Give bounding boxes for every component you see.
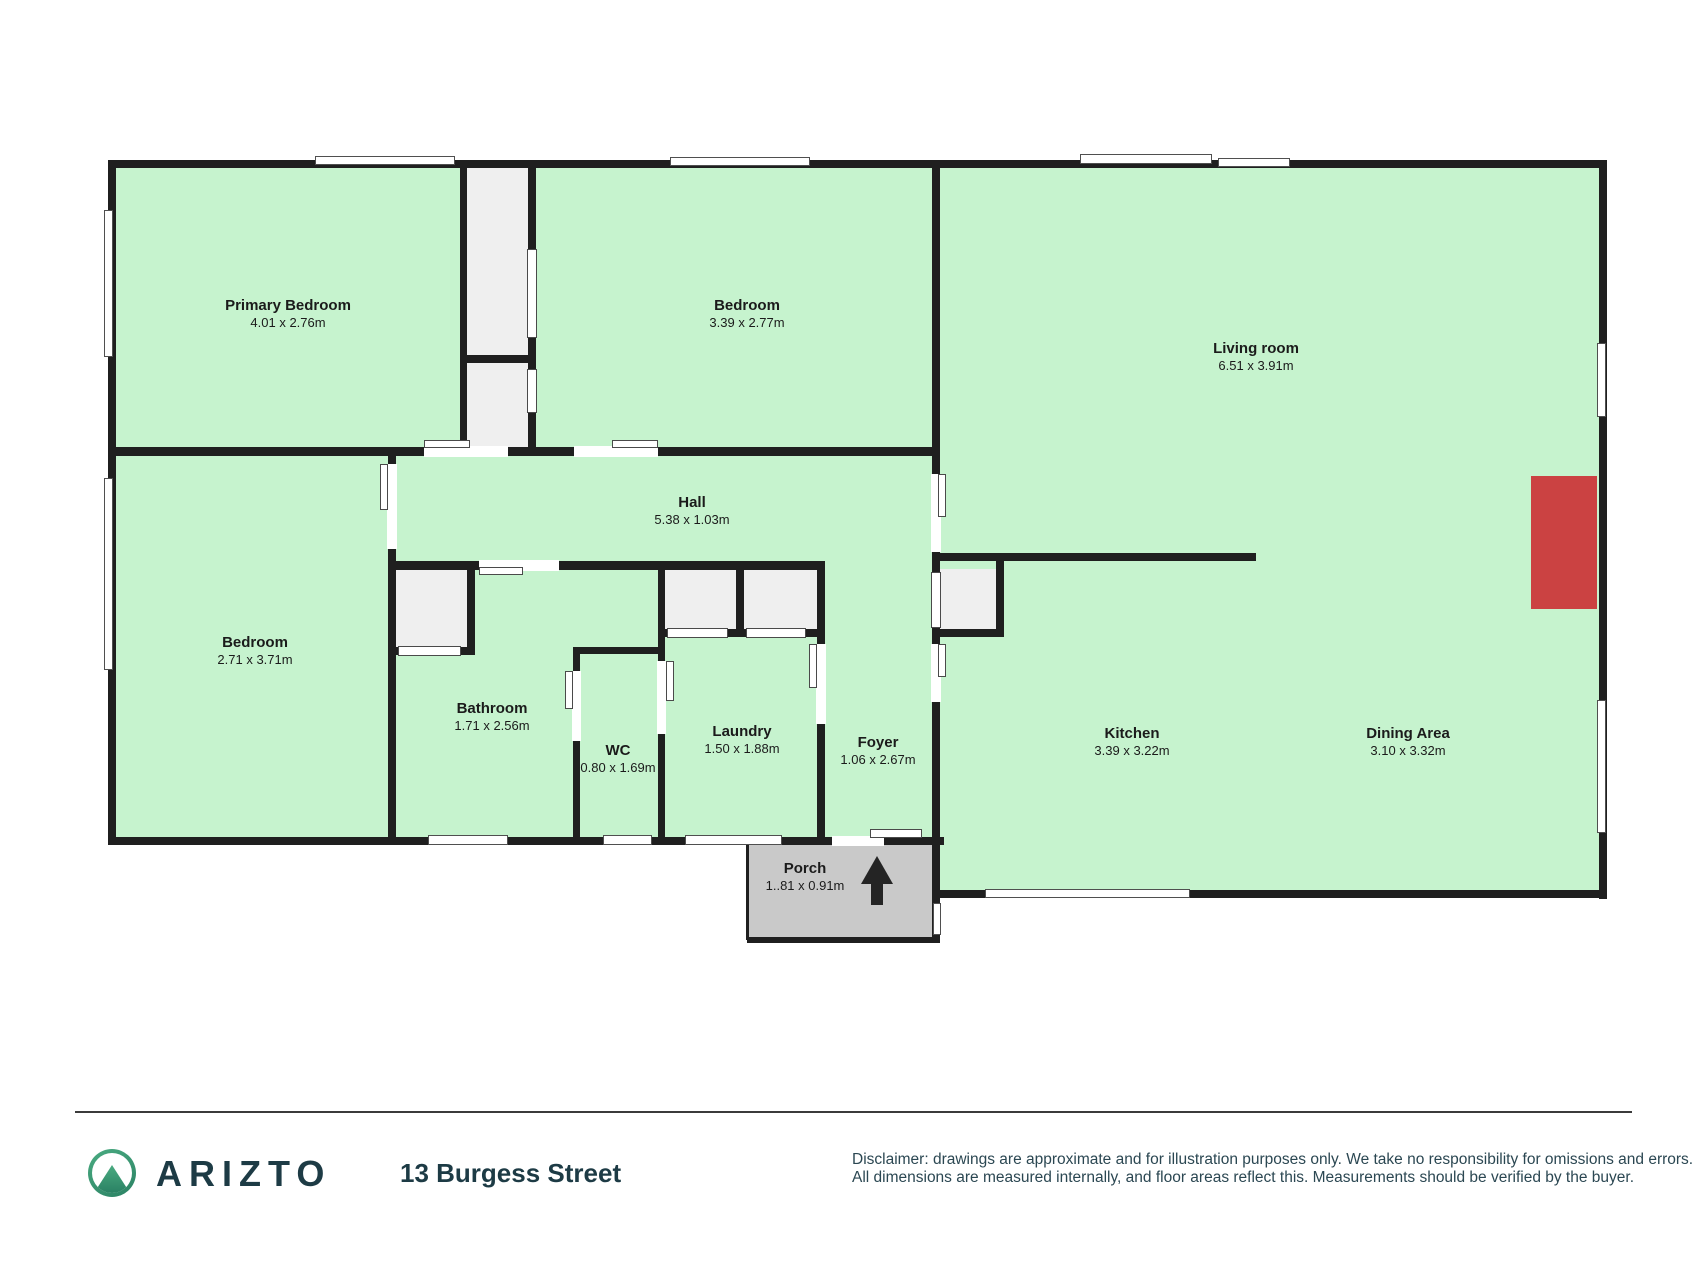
room-name: Bedroom (217, 634, 292, 651)
wall (467, 561, 475, 655)
room-dims: 1.71 x 2.56m (454, 718, 529, 734)
room-dims: 2.71 x 3.71m (217, 652, 292, 668)
door-leaf (565, 671, 573, 709)
room-label-hall: Hall 5.38 x 1.03m (654, 494, 729, 528)
closet (394, 569, 467, 647)
room-name: Kitchen (1094, 725, 1169, 742)
door-leaf (938, 644, 946, 677)
room-label-bedroom-left: Bedroom 2.71 x 3.71m (217, 634, 292, 668)
door-opening (667, 628, 728, 638)
room-name: WC (580, 742, 655, 759)
door-leaf (380, 464, 388, 510)
door-leaf (612, 440, 658, 448)
brand-wordmark: ARIZTO (156, 1156, 331, 1192)
room-label-primary-bedroom: Primary Bedroom 4.01 x 2.76m (225, 297, 351, 331)
door-leaf (870, 829, 922, 838)
window (1218, 158, 1290, 167)
disclaimer-line: Disclaimer: drawings are approximate and… (852, 1151, 1693, 1169)
north-arrow-icon (861, 856, 893, 884)
room-label-dining-area: Dining Area 3.10 x 3.32m (1366, 725, 1450, 759)
door-leaf (809, 644, 817, 688)
floor-plan-page: Primary Bedroom 4.01 x 2.76m Bedroom 3.3… (0, 0, 1707, 1280)
room-name: Porch (766, 860, 845, 877)
door-opening (387, 464, 397, 549)
window (1597, 343, 1606, 417)
window (104, 478, 113, 670)
door-opening (527, 249, 537, 338)
room-dims: 3.39 x 2.77m (709, 315, 784, 331)
wall (460, 167, 467, 447)
room-dims: 1..81 x 0.91m (766, 878, 845, 894)
room-label-living-room: Living room 6.51 x 3.91m (1213, 340, 1299, 374)
door-opening (657, 661, 666, 734)
door-opening (527, 369, 537, 413)
wall (388, 561, 824, 570)
wall (746, 845, 749, 940)
room-dims: 3.39 x 3.22m (1094, 743, 1169, 759)
door-leaf (424, 440, 470, 448)
closet (665, 569, 736, 629)
wall (747, 937, 940, 943)
room-label-wc: WC 0.80 x 1.69m (580, 742, 655, 776)
window (1080, 154, 1212, 164)
room-name: Living room (1213, 340, 1299, 357)
closet (744, 569, 817, 629)
window (933, 903, 941, 935)
room-label-kitchen: Kitchen 3.39 x 3.22m (1094, 725, 1169, 759)
room-label-bedroom-mid: Bedroom 3.39 x 2.77m (709, 297, 784, 331)
closet (467, 167, 528, 355)
wall (932, 629, 1004, 637)
room-name: Foyer (840, 734, 915, 751)
room-dims: 3.10 x 3.32m (1366, 743, 1450, 759)
door-opening (816, 644, 826, 724)
window (603, 835, 652, 845)
window (685, 835, 782, 845)
window (315, 156, 455, 165)
room-label-laundry: Laundry 1.50 x 1.88m (704, 723, 779, 757)
door-opening (931, 572, 941, 628)
window (104, 210, 113, 357)
door-opening (746, 628, 806, 638)
arizto-logo-icon (88, 1149, 136, 1197)
room-dims: 0.80 x 1.69m (580, 760, 655, 776)
north-arrow-icon (871, 883, 883, 905)
property-address: 13 Burgess Street (400, 1160, 621, 1186)
mountain-icon (94, 1165, 130, 1193)
room-label-foyer: Foyer 1.06 x 2.67m (840, 734, 915, 768)
room-name: Bedroom (709, 297, 784, 314)
wall (996, 561, 1004, 637)
disclaimer-text: Disclaimer: drawings are approximate and… (852, 1151, 1693, 1186)
wall (932, 553, 1256, 561)
window (428, 835, 508, 845)
wall (736, 561, 744, 637)
wall (460, 355, 536, 363)
wall (108, 447, 940, 456)
door-opening (572, 671, 581, 741)
room-dims: 1.50 x 1.88m (704, 741, 779, 757)
fireplace-feature (1531, 476, 1597, 609)
wall (573, 647, 665, 654)
floor-area-right (940, 167, 1600, 891)
window (1597, 700, 1606, 833)
room-label-porch: Porch 1..81 x 0.91m (766, 860, 845, 894)
door-leaf (938, 474, 946, 517)
arizto-logo-icon (92, 1153, 132, 1193)
room-label-bathroom: Bathroom 1.71 x 2.56m (454, 700, 529, 734)
room-dims: 6.51 x 3.91m (1213, 358, 1299, 374)
window (670, 157, 810, 166)
closet (940, 569, 996, 629)
window (985, 889, 1190, 898)
door-leaf (479, 567, 523, 575)
room-name: Dining Area (1366, 725, 1450, 742)
room-name: Laundry (704, 723, 779, 740)
room-name: Primary Bedroom (225, 297, 351, 314)
room-dims: 4.01 x 2.76m (225, 315, 351, 331)
room-name: Bathroom (454, 700, 529, 717)
room-dims: 1.06 x 2.67m (840, 752, 915, 768)
door-opening (398, 646, 461, 656)
door-leaf (666, 661, 674, 701)
disclaimer-line: All dimensions are measured internally, … (852, 1169, 1693, 1187)
footer-divider (75, 1111, 1632, 1113)
closet (467, 363, 528, 447)
room-dims: 5.38 x 1.03m (654, 512, 729, 528)
room-name: Hall (654, 494, 729, 511)
